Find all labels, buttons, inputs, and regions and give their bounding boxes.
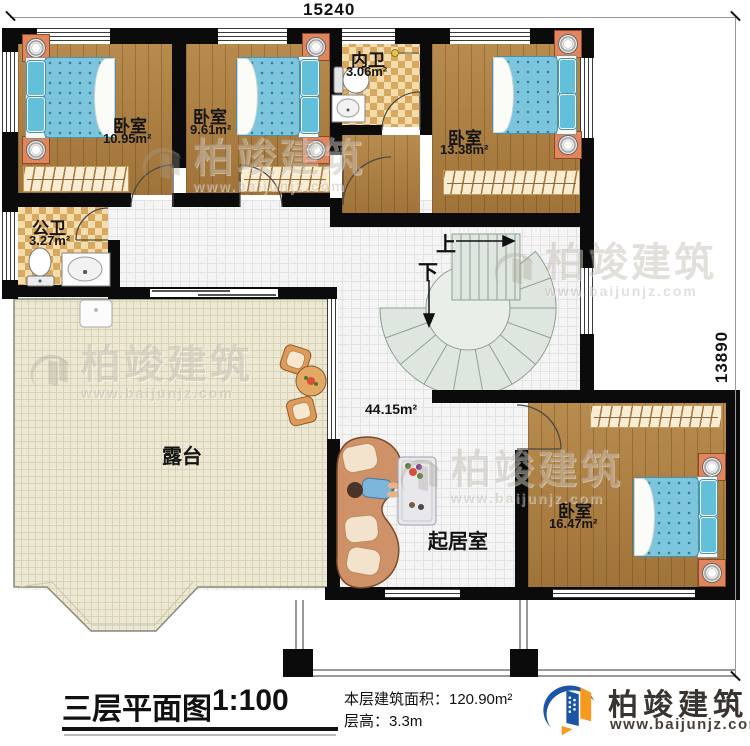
door-bath-inner xyxy=(382,92,420,130)
room-area: 13.38m² xyxy=(440,142,488,157)
door-bedroom-br xyxy=(517,405,561,449)
room-area: 3.06m² xyxy=(346,64,387,79)
title-underline-2 xyxy=(64,734,336,736)
porch-column xyxy=(283,649,313,677)
door-bedroom-tr xyxy=(343,157,391,205)
dimension-line-right xyxy=(735,17,736,678)
room-label: 露台 xyxy=(162,440,202,469)
dimension-right-value: 13890 xyxy=(712,327,732,387)
plan-scale: 1:100 xyxy=(212,684,289,728)
dimension-top-value: 15240 xyxy=(303,0,355,20)
plan-title-text: 三层平面图 xyxy=(62,684,212,728)
porch-post-line xyxy=(295,600,304,649)
floor-plan: 上 下 xyxy=(0,0,750,746)
porch-column xyxy=(510,649,538,677)
door-bedroom-tl xyxy=(131,165,173,207)
title-underline xyxy=(62,727,338,731)
brand-logo-icon xyxy=(540,676,602,742)
floor-area-text: 本层建筑面积：120.90m² xyxy=(344,688,512,709)
brand-url: www.baijunjz.com xyxy=(610,716,750,733)
dimension-line-top xyxy=(10,17,736,18)
room-label: 起居室 xyxy=(428,525,488,554)
room-area: 9.61m² xyxy=(190,122,231,137)
room-area: 3.27m² xyxy=(29,233,70,248)
room-area: 10.95m² xyxy=(103,131,151,146)
room-area: 16.47m² xyxy=(549,516,597,531)
room-area: 44.15m² xyxy=(365,401,417,417)
door-bedroom-tm xyxy=(240,165,282,207)
plan-title: 三层平面图1:100 xyxy=(62,684,289,728)
porch-post-line xyxy=(519,600,528,649)
door-bath-public xyxy=(76,208,108,240)
floor-height-text: 层高：3.3m xyxy=(344,710,422,731)
